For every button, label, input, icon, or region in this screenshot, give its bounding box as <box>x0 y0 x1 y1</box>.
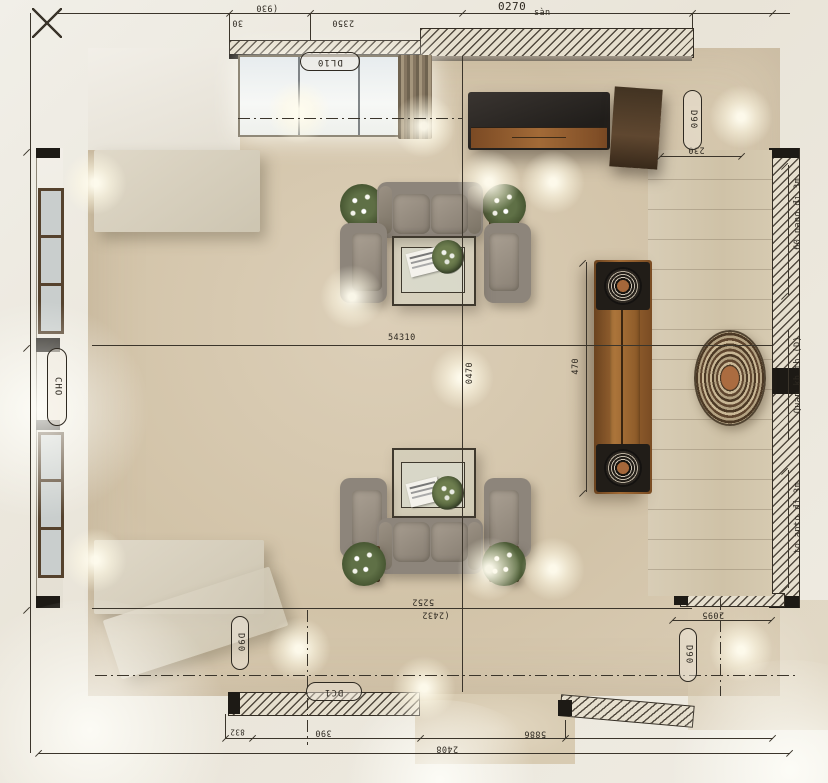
dim-extension <box>310 13 311 40</box>
tag-door-bottom-left: D90 <box>231 616 249 670</box>
dim-label-2432: (2432 <box>422 609 450 618</box>
tag-text: DC1 <box>324 687 343 696</box>
dim-label-san: sàn <box>534 9 551 18</box>
tag-text: D90 <box>688 110 697 129</box>
dim-extension <box>692 13 693 28</box>
tag-door-bottom-right: D90 <box>679 628 697 682</box>
table-plant <box>432 240 464 274</box>
tag-door-bottom-center: DC1 <box>306 682 362 701</box>
tag-door-top: DL10 <box>300 52 360 71</box>
speaker-cone-icon <box>604 267 642 305</box>
note-bracket <box>788 330 789 440</box>
dim-label-470: 470 <box>572 358 581 375</box>
speaker-bottom <box>596 444 650 492</box>
dim-label-2408: 2408 <box>436 743 458 752</box>
dim-label-54310: 54310 <box>388 334 416 343</box>
dim-line-bottom-1 <box>225 738 773 739</box>
tag-text: CHO <box>53 377 62 396</box>
console-wood-panel <box>610 297 640 456</box>
curtain <box>398 55 432 139</box>
armchair-seat <box>352 233 382 291</box>
wall-block-left-1 <box>36 148 60 158</box>
bench-slab-top-left <box>94 150 260 232</box>
tag-text: D90 <box>684 645 693 664</box>
wall-hatch-bottom-right <box>559 694 694 728</box>
dim-tick <box>786 750 793 757</box>
dim-label-2350: 2350 <box>332 17 354 26</box>
dim-label-30: 30 <box>232 17 243 26</box>
wall-block-bottom-center <box>558 700 572 716</box>
note-bracket <box>788 470 789 588</box>
window-mullion <box>41 283 61 286</box>
centerline <box>238 118 462 119</box>
plant-top-right <box>482 184 526 228</box>
speaker-cone-icon <box>604 449 642 487</box>
dim-label-0470: 0470 <box>466 362 475 384</box>
dim-line-top <box>55 13 790 14</box>
table-plant <box>432 476 464 510</box>
coffee-table-top <box>392 236 476 306</box>
dim-extension <box>225 714 226 738</box>
window-left-upper <box>38 188 64 334</box>
coffee-table-bottom <box>392 448 476 518</box>
note-right-bottom: to anto đi 3m <box>794 482 803 554</box>
window-mullion <box>41 479 61 482</box>
window-left-lower <box>38 432 64 578</box>
wall-block-bottom-left <box>228 692 240 714</box>
tag-window-left: CHO <box>47 348 67 426</box>
window-mullion <box>41 527 61 530</box>
tall-cabinet-top-right <box>609 86 662 169</box>
wall-hatch-top-right <box>420 28 694 58</box>
wall-block-left-4 <box>36 596 60 608</box>
dim-line-2095 <box>672 620 772 621</box>
armchair-seat <box>489 233 519 291</box>
center-line-vertical <box>462 56 463 692</box>
note-bracket <box>788 165 789 295</box>
centerline <box>307 610 308 745</box>
dim-tick <box>769 735 776 742</box>
dim-label-832: 832 <box>230 727 245 735</box>
armchair-top-left <box>340 223 387 303</box>
wall-top-left-block <box>88 48 240 150</box>
floor-plan-render: 30 (930 2350 0270 sàn 230 60 nano đi 3m … <box>0 0 828 783</box>
plant-bottom-left <box>342 542 386 586</box>
dim-label-0270: 0270 <box>498 1 526 13</box>
wall-block-right-top <box>769 148 799 158</box>
dim-label-5886: 5886 <box>524 728 546 737</box>
dim-line-bottom-interior <box>92 608 692 609</box>
dim-extension <box>229 13 230 40</box>
dim-label-390: 390 <box>315 727 332 736</box>
window-mullion <box>41 235 61 238</box>
wall-face-top-right <box>420 56 692 61</box>
dim-line-230 <box>660 156 742 157</box>
tag-text: D90 <box>236 633 245 652</box>
armchair-top-right <box>484 223 531 303</box>
sofa-bottom <box>377 518 483 574</box>
tv-cabinet-drawers <box>471 127 607 148</box>
note-right-mid: Quan kh th (D) <box>794 336 803 413</box>
dim-line-left <box>30 13 31 753</box>
dim-label-5252: 5252 <box>412 596 434 605</box>
dim-label-930: (930 <box>256 2 278 11</box>
armchair-seat <box>489 490 519 548</box>
plant-bottom-right <box>482 542 526 586</box>
dim-label-2095: 2095 <box>702 609 724 618</box>
dim-line-bottom-total <box>38 753 790 754</box>
dim-extension <box>565 720 566 738</box>
center-line-horizontal <box>92 345 772 346</box>
sofa-armrest <box>468 186 481 234</box>
sofa-top <box>377 182 483 238</box>
dim-line-470 <box>586 262 587 492</box>
console-groove <box>621 302 623 452</box>
sofa-cushion <box>393 522 430 562</box>
speaker-top <box>596 262 650 310</box>
sofa-armrest <box>468 522 481 570</box>
tag-text: DL10 <box>317 57 343 66</box>
sofa-cushion <box>393 194 430 234</box>
note-right-top: 60 nano đi 3m <box>794 178 803 250</box>
tag-door-top-right: D90 <box>683 90 702 150</box>
tv-cabinet <box>468 92 610 150</box>
